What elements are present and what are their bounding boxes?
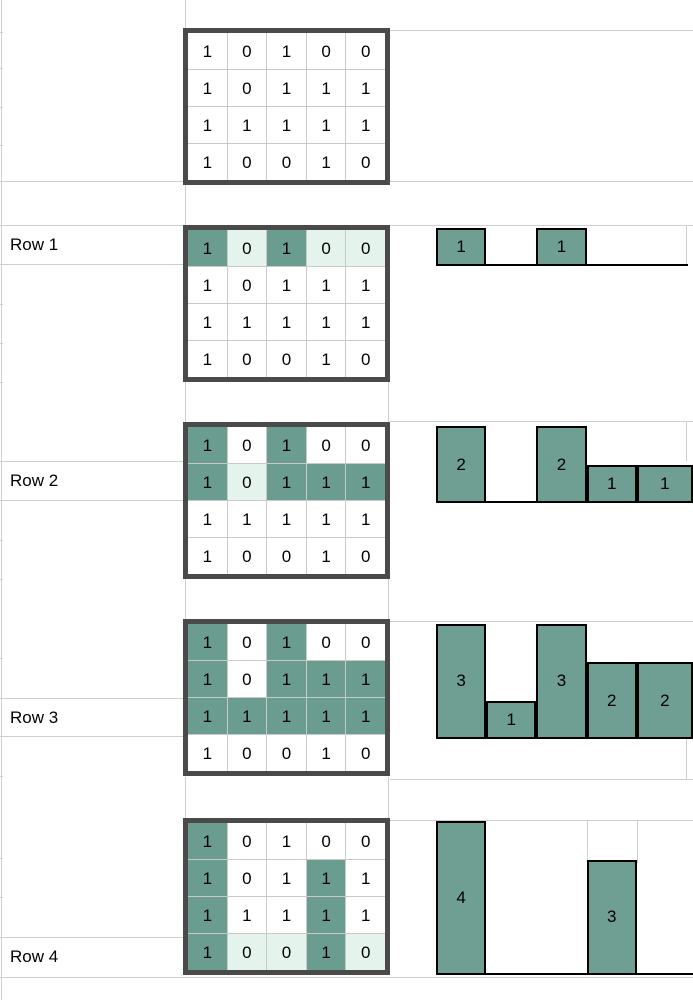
matrix-initial: 10100101111111110010 — [183, 28, 390, 185]
matrix-cell[interactable]: 0 — [307, 427, 346, 463]
matrix-cell[interactable]: 1 — [267, 304, 306, 340]
matrix-cell[interactable]: 1 — [346, 70, 385, 106]
matrix-cell[interactable]: 0 — [346, 144, 385, 180]
matrix-cell[interactable]: 1 — [307, 698, 346, 734]
histogram-bar[interactable]: 1 — [587, 465, 637, 504]
row-label-3[interactable]: Row 3 — [10, 707, 58, 729]
matrix-cell[interactable]: 1 — [267, 427, 306, 463]
grid-line-vertical — [686, 225, 687, 264]
matrix-cell[interactable]: 1 — [307, 735, 346, 771]
matrix-cell[interactable]: 1 — [307, 304, 346, 340]
matrix-cell[interactable]: 1 — [346, 267, 385, 303]
matrix-cell[interactable]: 1 — [228, 897, 267, 933]
matrix-cell[interactable]: 1 — [307, 934, 346, 970]
matrix-cell[interactable]: 1 — [346, 304, 385, 340]
grid-line-horizontal — [0, 461, 183, 462]
matrix-cell[interactable]: 1 — [188, 624, 227, 660]
grid-line-horizontal — [0, 977, 693, 978]
matrix-cell[interactable]: 0 — [228, 33, 267, 69]
matrix-cell[interactable]: 0 — [346, 230, 385, 266]
grid-line-tick — [0, 776, 3, 777]
histogram-bar[interactable]: 3 — [536, 624, 586, 740]
matrix-cell[interactable]: 1 — [307, 267, 346, 303]
grid-line-vertical — [686, 737, 687, 779]
matrix-cell[interactable]: 1 — [346, 107, 385, 143]
matrix-cell[interactable]: 1 — [188, 33, 227, 69]
grid-line-horizontal — [390, 225, 693, 226]
matrix-cell[interactable]: 1 — [307, 107, 346, 143]
matrix-cell[interactable]: 0 — [267, 735, 306, 771]
grid-line-horizontal — [390, 779, 693, 780]
matrix-cell[interactable]: 1 — [228, 501, 267, 537]
matrix-cell[interactable]: 0 — [228, 464, 267, 500]
matrix-cell[interactable]: 1 — [346, 897, 385, 933]
grid-line-horizontal — [390, 621, 693, 622]
matrix-cell[interactable]: 0 — [228, 538, 267, 574]
grid-line-tick — [0, 658, 3, 659]
matrix-row-4: 10100101111111110010 — [183, 818, 390, 975]
row-label-1[interactable]: Row 1 — [10, 234, 58, 256]
matrix-cell[interactable]: 1 — [267, 698, 306, 734]
matrix-cell[interactable]: 0 — [228, 860, 267, 896]
matrix-cell[interactable]: 1 — [267, 70, 306, 106]
histogram-bar[interactable]: 2 — [637, 662, 693, 739]
matrix-cell[interactable]: 0 — [228, 661, 267, 697]
grid-line-vertical — [185, 0, 186, 28]
matrix-cell[interactable]: 0 — [228, 624, 267, 660]
grid-line-vertical — [388, 777, 389, 820]
matrix-cell[interactable]: 1 — [188, 735, 227, 771]
grid-line-vertical — [637, 820, 638, 863]
grid-line-vertical — [388, 382, 389, 422]
grid-line-horizontal — [0, 225, 183, 226]
matrix-cell[interactable]: 0 — [346, 624, 385, 660]
grid-line-vertical — [185, 382, 186, 422]
histogram-bar[interactable]: 1 — [637, 465, 693, 504]
grid-line-horizontal — [0, 736, 183, 737]
matrix-cell[interactable]: 1 — [307, 501, 346, 537]
grid-line-tick — [0, 107, 3, 108]
matrix-cell[interactable]: 0 — [228, 144, 267, 180]
matrix-cell[interactable]: 1 — [188, 304, 227, 340]
row-label-4[interactable]: Row 4 — [10, 946, 58, 968]
grid-line-vertical — [1, 0, 2, 1000]
matrix-cell[interactable]: 1 — [346, 501, 385, 537]
matrix-row-3: 10100101111111110010 — [183, 619, 390, 776]
matrix-cell[interactable]: 1 — [307, 538, 346, 574]
matrix-cell[interactable]: 1 — [188, 698, 227, 734]
grid-line-tick — [0, 304, 3, 305]
matrix-cell[interactable]: 0 — [267, 538, 306, 574]
grid-line-tick — [0, 897, 3, 898]
matrix-cell[interactable]: 0 — [228, 230, 267, 266]
matrix-cell[interactable]: 1 — [307, 860, 346, 896]
matrix-cell[interactable]: 0 — [307, 33, 346, 69]
grid-line-vertical — [686, 421, 687, 461]
matrix-cell[interactable]: 0 — [307, 230, 346, 266]
matrix-cell[interactable]: 0 — [307, 823, 346, 859]
matrix-cell[interactable]: 1 — [307, 464, 346, 500]
matrix-cell[interactable]: 1 — [346, 661, 385, 697]
matrix-cell[interactable]: 0 — [346, 823, 385, 859]
matrix-cell[interactable]: 1 — [188, 661, 227, 697]
matrix-cell[interactable]: 1 — [267, 107, 306, 143]
matrix-row-1: 10100101111111110010 — [183, 225, 390, 382]
grid-line-tick — [0, 858, 3, 859]
matrix-cell[interactable]: 0 — [267, 934, 306, 970]
grid-line-horizontal — [0, 500, 183, 501]
matrix-row-2: 10100101111111110010 — [183, 422, 390, 579]
grid-line-horizontal — [0, 698, 183, 699]
grid-line-horizontal — [0, 181, 185, 182]
matrix-cell[interactable]: 1 — [307, 144, 346, 180]
histogram-bar[interactable]: 2 — [587, 662, 637, 739]
matrix-cell[interactable]: 0 — [346, 735, 385, 771]
matrix-cell[interactable]: 1 — [188, 107, 227, 143]
matrix-cell[interactable]: 1 — [188, 934, 227, 970]
matrix-cell[interactable]: 1 — [307, 70, 346, 106]
matrix-cell[interactable]: 1 — [188, 860, 227, 896]
matrix-cell[interactable]: 1 — [267, 897, 306, 933]
matrix-cell[interactable]: 0 — [346, 427, 385, 463]
grid-line-vertical — [185, 579, 186, 619]
matrix-cell[interactable]: 1 — [188, 230, 227, 266]
matrix-cell[interactable]: 0 — [267, 144, 306, 180]
matrix-cell[interactable]: 0 — [228, 267, 267, 303]
histogram-bar[interactable]: 3 — [587, 860, 637, 976]
matrix-cell[interactable]: 1 — [188, 501, 227, 537]
matrix-cell[interactable]: 1 — [267, 661, 306, 697]
row-label-2[interactable]: Row 2 — [10, 470, 58, 492]
grid-line-vertical — [587, 820, 588, 863]
grid-line-tick — [0, 68, 3, 69]
histogram-bar[interactable]: 4 — [436, 821, 486, 975]
matrix-cell[interactable]: 0 — [346, 538, 385, 574]
grid-line-tick — [0, 382, 3, 383]
grid-line-tick — [0, 540, 3, 541]
matrix-cell[interactable]: 0 — [346, 341, 385, 377]
grid-line-horizontal — [390, 30, 693, 31]
matrix-cell[interactable]: 0 — [228, 735, 267, 771]
histogram-bar[interactable]: 2 — [536, 426, 586, 503]
matrix-cell[interactable]: 1 — [267, 464, 306, 500]
matrix-cell[interactable]: 1 — [346, 698, 385, 734]
matrix-cell[interactable]: 0 — [228, 823, 267, 859]
matrix-cell[interactable]: 1 — [267, 230, 306, 266]
grid-line-tick — [0, 32, 3, 33]
matrix-cell[interactable]: 0 — [228, 341, 267, 377]
histogram-bar[interactable]: 1 — [536, 228, 586, 267]
matrix-cell[interactable]: 0 — [228, 427, 267, 463]
grid-line-horizontal — [390, 181, 693, 182]
matrix-cell[interactable]: 0 — [267, 341, 306, 377]
matrix-cell[interactable]: 1 — [228, 698, 267, 734]
spreadsheet-canvas: 10100101111111110010 1010010111111111001… — [0, 0, 693, 1000]
matrix-cell[interactable]: 1 — [307, 897, 346, 933]
histogram-bar[interactable]: 1 — [486, 701, 536, 740]
grid-line-vertical — [185, 777, 186, 820]
matrix-cell[interactable]: 1 — [267, 267, 306, 303]
matrix-cell[interactable]: 1 — [188, 267, 227, 303]
grid-line-tick — [0, 145, 3, 146]
matrix-cell[interactable]: 1 — [267, 33, 306, 69]
grid-line-tick — [0, 579, 3, 580]
matrix-cell[interactable]: 1 — [267, 624, 306, 660]
histogram-bar[interactable]: 1 — [436, 228, 486, 267]
grid-line-vertical — [185, 185, 186, 225]
matrix-cell[interactable]: 1 — [228, 304, 267, 340]
matrix-cell[interactable]: 0 — [228, 70, 267, 106]
matrix-cell[interactable]: 1 — [267, 501, 306, 537]
matrix-cell[interactable]: 0 — [346, 33, 385, 69]
matrix-cell[interactable]: 1 — [346, 860, 385, 896]
matrix-cell[interactable]: 1 — [188, 538, 227, 574]
matrix-cell[interactable]: 1 — [188, 144, 227, 180]
matrix-cell[interactable]: 0 — [228, 934, 267, 970]
grid-line-vertical — [388, 579, 389, 619]
matrix-cell[interactable]: 1 — [307, 661, 346, 697]
histogram-bar[interactable]: 2 — [436, 426, 486, 503]
matrix-cell[interactable]: 1 — [188, 341, 227, 377]
matrix-cell[interactable]: 1 — [267, 823, 306, 859]
matrix-cell[interactable]: 1 — [346, 464, 385, 500]
grid-line-horizontal — [0, 264, 183, 265]
matrix-cell[interactable]: 1 — [188, 897, 227, 933]
matrix-cell[interactable]: 1 — [188, 70, 227, 106]
matrix-cell[interactable]: 0 — [307, 624, 346, 660]
matrix-cell[interactable]: 1 — [188, 427, 227, 463]
matrix-cell[interactable]: 1 — [188, 464, 227, 500]
matrix-cell[interactable]: 0 — [346, 934, 385, 970]
matrix-cell[interactable]: 1 — [267, 860, 306, 896]
grid-line-horizontal — [0, 937, 183, 938]
matrix-cell[interactable]: 1 — [307, 341, 346, 377]
grid-line-tick — [0, 343, 3, 344]
matrix-cell[interactable]: 1 — [188, 823, 227, 859]
grid-line-horizontal — [390, 421, 693, 422]
matrix-cell[interactable]: 1 — [228, 107, 267, 143]
histogram-bar[interactable]: 3 — [436, 624, 486, 740]
